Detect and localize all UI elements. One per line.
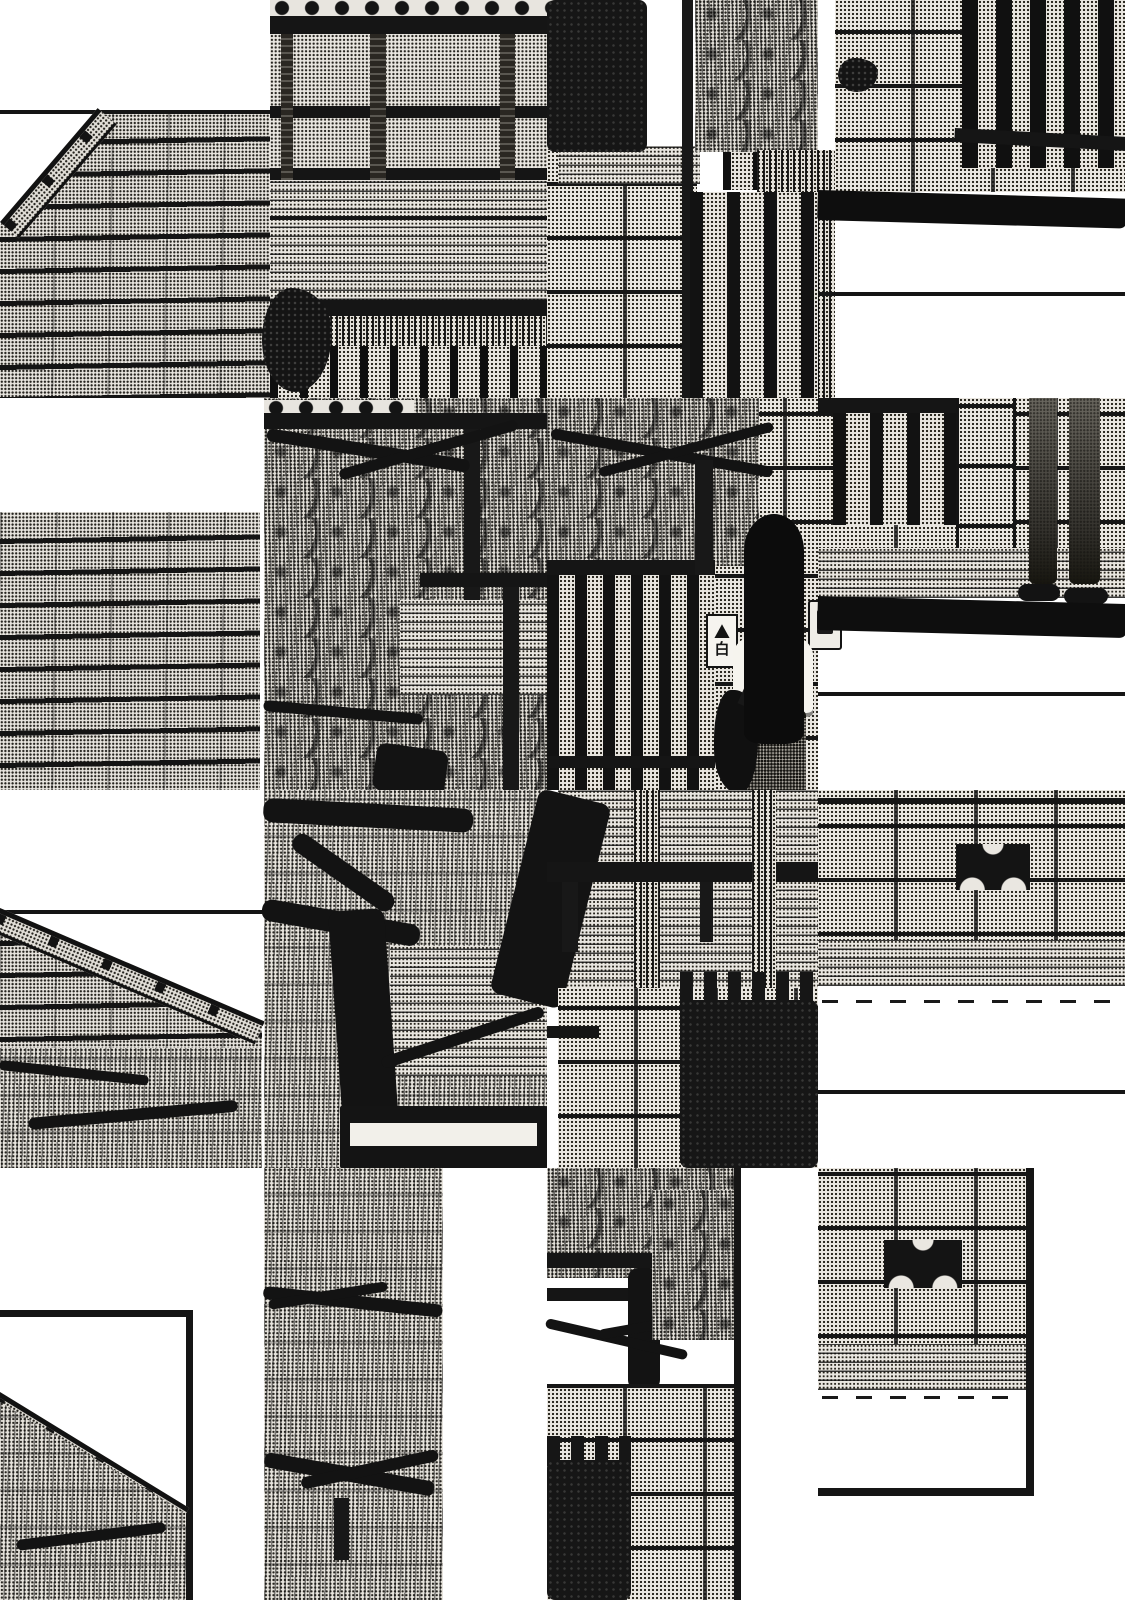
eave-ends-row-2 (264, 400, 414, 413)
panel-border-top (0, 1310, 193, 1317)
pine2-tuft (652, 1190, 740, 1340)
wall-top-line (818, 798, 1125, 804)
wall-post-1 (281, 34, 293, 180)
eave-tile-ends-row (270, 0, 560, 16)
panel3-border-right (1026, 1168, 1034, 1495)
bench-rail (547, 862, 818, 882)
walker-shoe-left (1018, 584, 1060, 601)
wall-post-3 (500, 34, 515, 180)
dark-bar-left (547, 1026, 599, 1038)
veranda-planks (270, 180, 560, 300)
road-speckle-1 (822, 1000, 1120, 1003)
panel2-border-right (734, 1168, 741, 1600)
gate-top-rail (547, 560, 715, 575)
ridge-line-row2 (0, 910, 262, 914)
curb-band-3 (818, 1344, 1026, 1390)
rail-leg-2 (700, 882, 713, 942)
eave-beam (270, 16, 560, 34)
window-post-2 (503, 587, 519, 790)
bench2-top (547, 1253, 665, 1268)
pine-tuft-top (695, 0, 818, 152)
inner-fence-bars (690, 192, 818, 398)
wall-shadow-band (817, 596, 1125, 638)
bush-over-gate (547, 398, 759, 566)
dark-hedge-top (547, 0, 647, 152)
walker-legs (1026, 398, 1102, 598)
window-rail (420, 573, 547, 587)
ornament-trio-2 (884, 1240, 962, 1288)
stone-gate-wall (547, 150, 697, 398)
road-speckle-2 (822, 1396, 1022, 1399)
panel3-border-bottom (818, 1488, 1034, 1496)
ornament-trio-1 (956, 844, 1030, 890)
roof-tiles-left (0, 512, 260, 790)
window-wall-patch (400, 600, 547, 695)
gate-bottom-rail (547, 756, 715, 768)
grass-column-base (264, 1168, 443, 1600)
gate2-top-rail (818, 398, 963, 413)
rail-leg-1 (562, 882, 578, 952)
panel-border-right (186, 1310, 193, 1600)
wall-post-2 (370, 34, 386, 180)
road-line-1 (818, 292, 1125, 296)
window-frame (340, 1106, 547, 1168)
veranda-edge-line (270, 216, 560, 220)
girl-hair (744, 514, 804, 744)
wall-beam-2 (270, 168, 560, 180)
gate-hinge-post (695, 460, 713, 576)
roof-tiles-top-left (0, 114, 270, 398)
wall-beam-1 (270, 106, 560, 118)
gcol-twig (334, 1498, 349, 1560)
road-line-3 (818, 1090, 1125, 1094)
curb-band-2 (818, 940, 1125, 986)
road-shadow-band (817, 190, 1125, 229)
road-line-2 (818, 692, 1125, 696)
gate2-bars (833, 413, 963, 525)
dark-hedge-mid (680, 1000, 818, 1168)
walker-shoe-right (1064, 588, 1108, 604)
grass-row3 (0, 1402, 186, 1600)
dark-hedge-bottom (547, 1460, 631, 1600)
manga-collage: 白 (0, 0, 1125, 1600)
